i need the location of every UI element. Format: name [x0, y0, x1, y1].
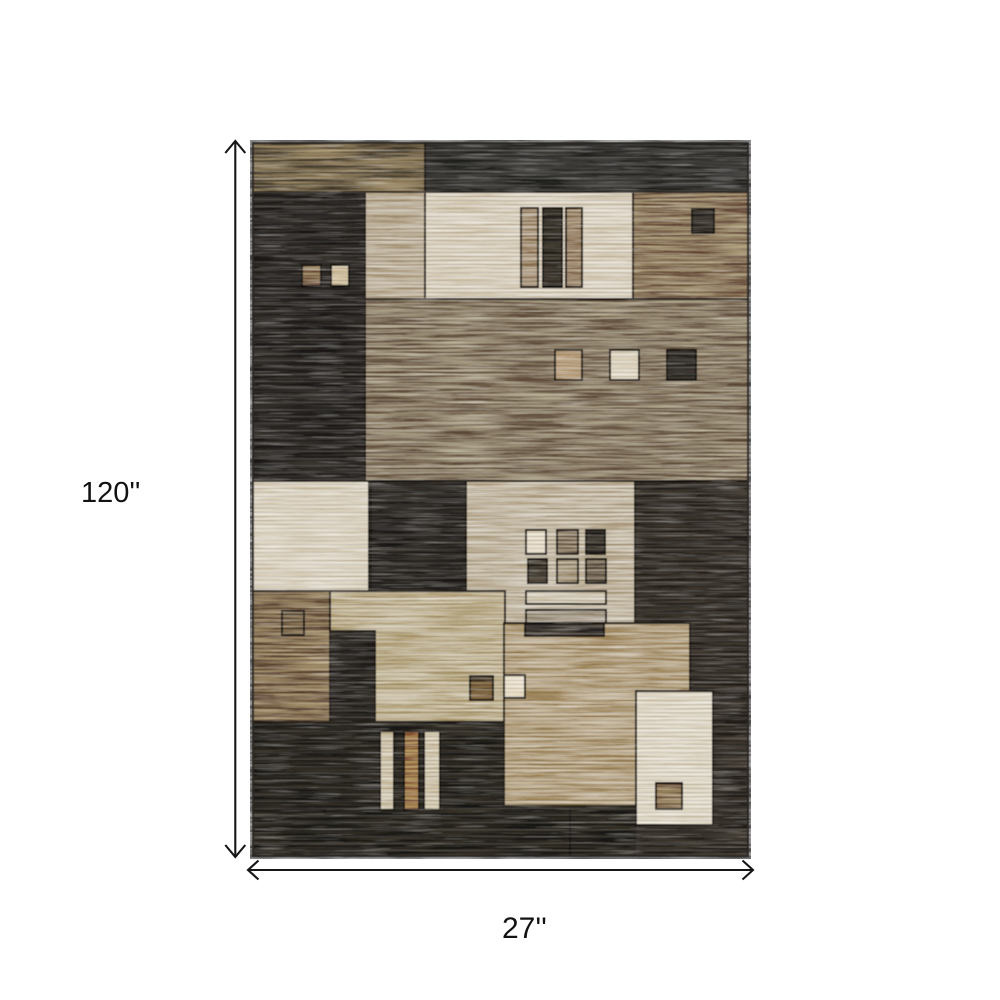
- svg-text:120'': 120'': [81, 477, 140, 509]
- svg-text:27'': 27'': [502, 912, 547, 945]
